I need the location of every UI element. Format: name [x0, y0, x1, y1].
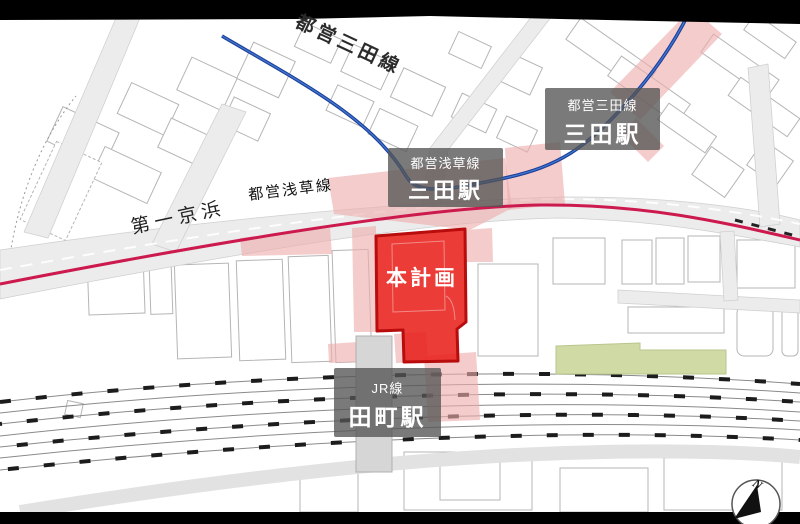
station-label-tamachi: JR線 田町駅	[334, 368, 441, 437]
station-line-name: 都営三田線	[545, 95, 660, 114]
station-label-mita-subway-mita-line: 都営三田線 三田駅	[545, 88, 660, 150]
station-name: 田町駅	[334, 398, 441, 432]
station-label-mita-subway-asakusa-line: 都営浅草線 三田駅	[388, 148, 503, 207]
station-name: 三田駅	[545, 115, 660, 149]
station-line-name: 都営浅草線	[388, 153, 503, 172]
green-area	[556, 343, 726, 374]
site-location-map: 都営三田線 都営浅草線 第一京浜 都営三田線 三田駅 都営浅草線 三田駅 JR線…	[0, 0, 800, 524]
plan-label: 本計画	[378, 262, 466, 292]
station-name: 三田駅	[388, 173, 503, 205]
station-line-name: JR線	[334, 378, 441, 397]
bottom-black-band	[0, 512, 800, 524]
